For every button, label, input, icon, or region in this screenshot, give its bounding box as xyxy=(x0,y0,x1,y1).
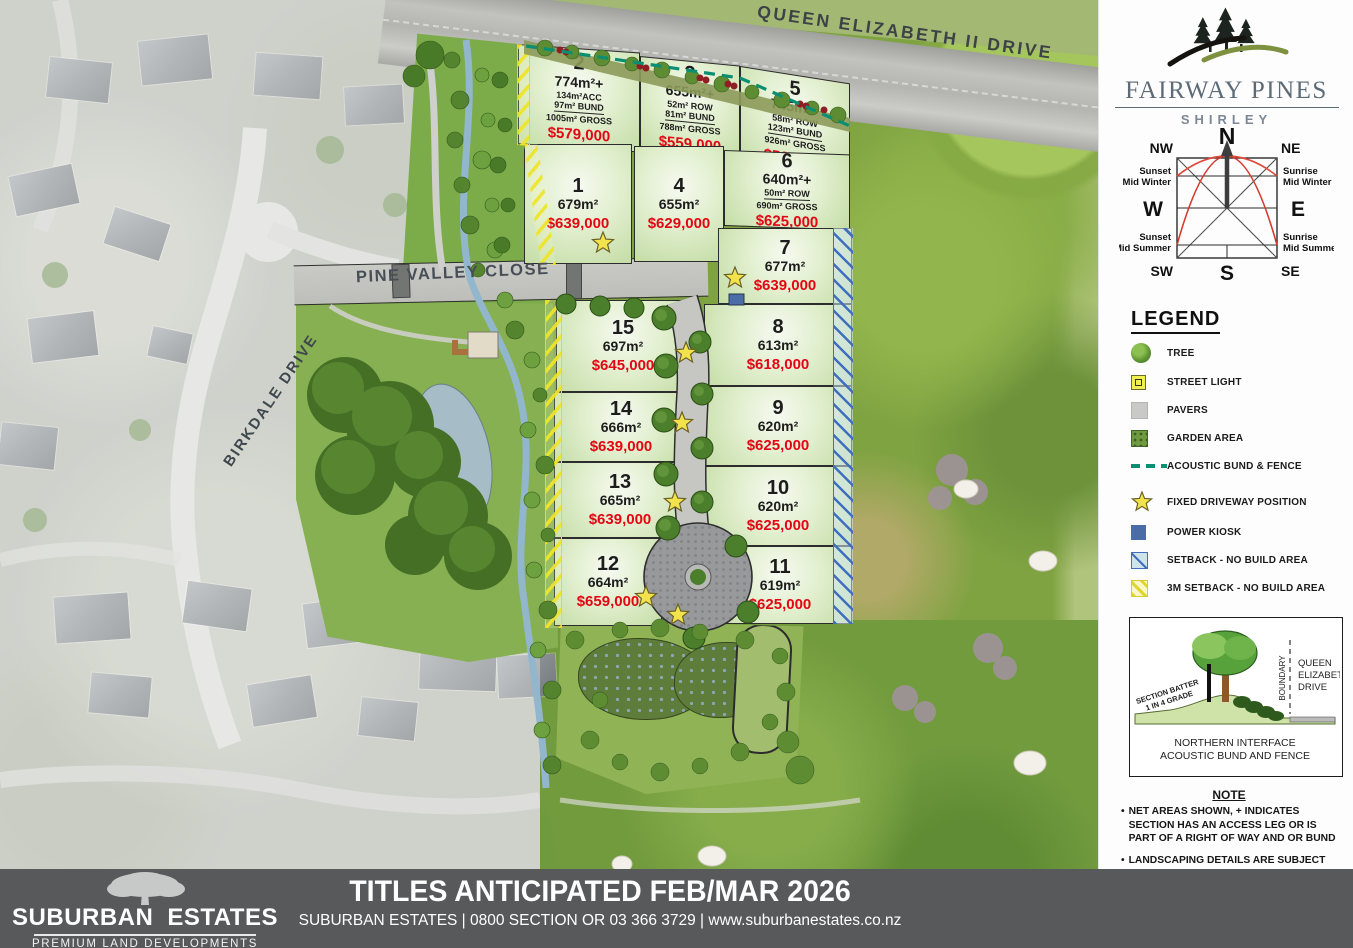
legend-title: LEGEND xyxy=(1131,308,1220,334)
brand-block: FAIRWAY PINES SHIRLEY xyxy=(1099,6,1353,127)
interface-sketch: BOUNDARY SECTION BATTER 1 IN 4 GRADE QUE… xyxy=(1130,618,1340,774)
legend-item-setback: SETBACK - NO BUILD AREA xyxy=(1131,551,1331,569)
northern-interface-diagram: BOUNDARY SECTION BATTER 1 IN 4 GRADE QUE… xyxy=(1129,617,1343,777)
iface-road-3: DRIVE xyxy=(1298,682,1327,693)
street-light-icon xyxy=(1131,375,1146,390)
tree-icon xyxy=(1131,343,1151,363)
brand-rule xyxy=(1115,107,1339,108)
compass-nw: NW xyxy=(1150,140,1174,156)
legend-label: GARDEN AREA xyxy=(1167,433,1243,444)
legend-item-street-light: STREET LIGHT xyxy=(1131,373,1331,391)
fairway-pines-logo-icon xyxy=(1152,6,1302,72)
info-panel: FAIRWAY PINES SHIRLEY N NW NE W E SW SE … xyxy=(1098,0,1353,948)
iface-caption-2: ACOUSTIC BUND AND FENCE xyxy=(1160,750,1310,762)
note-title: NOTE xyxy=(1121,788,1337,802)
logo-tagline: PREMIUM LAND DEVELOPMENTS xyxy=(30,938,260,948)
footer-contact-line: SUBURBAN ESTATES | 0800 SECTION OR 03 36… xyxy=(170,912,1030,930)
legend-label: PAVERS xyxy=(1167,405,1208,416)
boundary-label: BOUNDARY xyxy=(1278,655,1287,701)
sun-compass-diagram: N NW NE W E SW SE S Sunset Mid Winter Su… xyxy=(1119,128,1334,300)
power-kiosk-icon xyxy=(1131,525,1146,540)
note-bullet: •NET AREAS SHOWN, + INDICATES SECTION HA… xyxy=(1121,805,1337,846)
compass-w: W xyxy=(1143,198,1163,221)
legend-label: FIXED DRIVEWAY POSITION xyxy=(1167,497,1307,508)
bullet-dot: • xyxy=(1121,805,1125,846)
iface-road-2: ELIZABETH II xyxy=(1298,670,1340,681)
compass-e: E xyxy=(1291,198,1305,221)
legend-label: TREE xyxy=(1167,348,1194,359)
sunset-winter-label: Mid Winter xyxy=(1123,177,1172,188)
legend-label: 3M SETBACK - NO BUILD AREA xyxy=(1167,583,1325,594)
legend-label: SETBACK - NO BUILD AREA xyxy=(1167,555,1308,566)
site-plan-page: 2 774m²+ 134m²ACC 97m² BUND 1005m² GROSS… xyxy=(0,0,1353,948)
logo-rule xyxy=(34,934,256,936)
footer-text: TITLES ANTICIPATED FEB/MAR 2026 SUBURBAN… xyxy=(170,875,1030,930)
iface-caption-1: NORTHERN INTERFACE xyxy=(1174,737,1295,749)
compass-s: S xyxy=(1220,262,1234,285)
fence-post xyxy=(1207,664,1211,702)
legend-item-driveway: FIXED DRIVEWAY POSITION xyxy=(1131,491,1331,513)
legend-item-3m-setback: 3M SETBACK - NO BUILD AREA xyxy=(1131,579,1331,597)
brand-title: FAIRWAY PINES xyxy=(1099,77,1353,105)
setback-icon xyxy=(1131,552,1148,569)
legend-item-acoustic: ACOUSTIC BUND & FENCE xyxy=(1131,457,1331,475)
interface-tree xyxy=(1192,631,1257,702)
golf-features xyxy=(560,454,1057,872)
compass-n: N xyxy=(1219,128,1236,149)
legend-label: POWER KIOSK xyxy=(1167,527,1241,538)
star-icon xyxy=(1131,491,1153,513)
sunrise-summer-label: Mid Summer xyxy=(1283,243,1334,254)
brand-subtitle: SHIRLEY xyxy=(1099,112,1353,127)
compass-ne: NE xyxy=(1281,140,1300,156)
garden-area-icon xyxy=(1131,430,1148,447)
note-text: NET AREAS SHOWN, + INDICATES SECTION HAS… xyxy=(1129,805,1337,846)
sunrise-summer-label: Sunrise xyxy=(1283,232,1318,243)
legend-label: STREET LIGHT xyxy=(1167,377,1242,388)
legend-item-pavers: PAVERS xyxy=(1131,401,1331,419)
legend: LEGEND TREE STREET LIGHT PAVERS GARDEN A… xyxy=(1131,308,1331,607)
legend-item-tree: TREE xyxy=(1131,343,1331,363)
sunset-summer-label: Mid Summer xyxy=(1119,243,1171,254)
sunset-summer-label: Sunset xyxy=(1139,232,1172,243)
logo-word-1: SUBURBAN xyxy=(12,904,153,932)
legend-item-garden: GARDEN AREA xyxy=(1131,429,1331,447)
sunset-winter-label: Sunset xyxy=(1139,166,1172,177)
compass-se: SE xyxy=(1281,263,1300,279)
power-kiosk xyxy=(729,294,744,305)
sunrise-winter-label: Mid Winter xyxy=(1283,177,1332,188)
compass-sw: SW xyxy=(1150,263,1173,279)
pavers-icon xyxy=(1131,402,1148,419)
acoustic-bund-icon xyxy=(1131,464,1167,468)
legend-item-kiosk: POWER KIOSK xyxy=(1131,523,1331,541)
legend-label: ACOUSTIC BUND & FENCE xyxy=(1167,461,1302,472)
titles-anticipated-heading: TITLES ANTICIPATED FEB/MAR 2026 xyxy=(192,875,1009,909)
map-overlay xyxy=(0,0,1098,948)
3m-setback-icon xyxy=(1131,580,1148,597)
sunrise-winter-label: Sunrise xyxy=(1283,166,1318,177)
footer-bar: SUBURBAN ESTATES PREMIUM LAND DEVELOPMEN… xyxy=(0,869,1353,948)
iface-road-1: QUEEN xyxy=(1298,658,1332,669)
